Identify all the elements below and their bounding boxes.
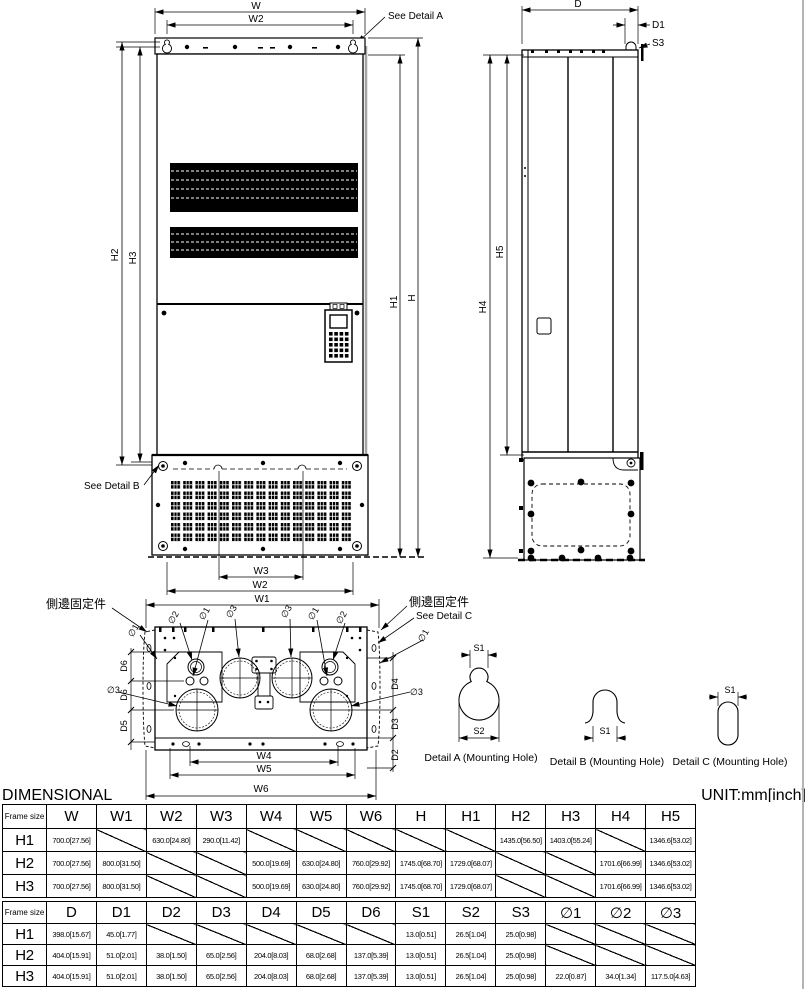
value-cell: 630.0[24.80]: [296, 852, 346, 875]
empty-cell: [196, 924, 246, 945]
detail-b-s1: S1: [599, 726, 610, 736]
dimension-table-widths-heights: Frame sizeWW1W2W3W4W5W6HH1H2H3H4H5H1700.…: [2, 804, 696, 898]
empty-cell: [446, 829, 496, 852]
value-cell: 760.0[29.92]: [346, 875, 396, 898]
dim-header: D6: [346, 902, 396, 924]
value-cell: 25.0[0.98]: [496, 924, 546, 945]
dim-header: D2: [146, 902, 196, 924]
empty-cell: [146, 924, 196, 945]
empty-cell: [546, 875, 596, 898]
frame-size-header: Frame size: [3, 805, 47, 829]
value-cell: 630.0[24.80]: [296, 875, 346, 898]
dim-label-phi1-tl: ∅1: [197, 605, 212, 621]
dim-header: W1: [96, 805, 146, 829]
frame-size-cell: H3: [3, 875, 47, 898]
dimensional-drawing-page: W W2 See Detail A H2 H3 H1 H See Detail …: [0, 0, 809, 989]
large-hole-br: [310, 689, 352, 731]
value-cell: 38.0[1.50]: [146, 945, 196, 966]
value-cell: 13.0[0.51]: [396, 945, 446, 966]
dim-header: S2: [446, 902, 496, 924]
empty-cell: [496, 875, 546, 898]
dim-header: W3: [196, 805, 246, 829]
dim-header: D1: [96, 902, 146, 924]
value-cell: 700.0[27.56]: [47, 875, 97, 898]
empty-cell: [546, 945, 596, 966]
dim-label-h4: H4: [478, 300, 489, 313]
dim-label-w3: W3: [254, 566, 269, 577]
dim-header: S3: [496, 902, 546, 924]
detail-c: [709, 692, 747, 745]
side-fix-right-label: 側邊固定件: [409, 594, 469, 609]
see-detail-c-label: See Detail C: [416, 611, 472, 622]
page-edge-line: [802, 0, 804, 989]
see-detail-a-label: See Detail A: [388, 11, 443, 22]
wall-bracket: [641, 44, 644, 61]
empty-cell: [496, 852, 546, 875]
value-cell: 204.0[8.03]: [246, 966, 296, 987]
dim-label-w2-bottom: W2: [253, 580, 268, 591]
value-cell: 25.0[0.98]: [496, 945, 546, 966]
dim-label-d6-upper: D6: [119, 660, 129, 672]
value-cell: 800.0[31.50]: [96, 875, 146, 898]
dimension-table-depths-holes: Frame sizeDD1D2D3D4D5D6S1S2S3∅1∅2∅3H1398…: [2, 901, 696, 987]
dim-label-w2-top: W2: [249, 14, 264, 25]
dim-header: W: [47, 805, 97, 829]
value-cell: 1701.6[66.99]: [596, 875, 646, 898]
value-cell: 45.0[1.77]: [96, 924, 146, 945]
side-body: [522, 50, 638, 460]
dim-label-w4: W4: [257, 751, 272, 762]
dim-header: H3: [546, 805, 596, 829]
dim-label-h: H: [407, 294, 418, 301]
value-cell: 117.5.0[4.63]: [646, 966, 696, 987]
dim-header: H5: [646, 805, 696, 829]
detail-c-s1: S1: [724, 685, 735, 695]
value-cell: 1346.6[53.02]: [646, 875, 696, 898]
detail-a-s2: S2: [473, 726, 484, 736]
dim-label-h1: H1: [389, 295, 400, 308]
dim-label-h3: H3: [128, 251, 139, 264]
value-cell: 1729.0[68.07]: [446, 875, 496, 898]
value-cell: 398.0[15.67]: [47, 924, 97, 945]
value-cell: 1435.0[56.50]: [496, 829, 546, 852]
dim-header: ∅3: [646, 902, 696, 924]
dim-label-phi3-tr: ∅3: [279, 603, 294, 619]
dim-header: S1: [396, 902, 446, 924]
dim-label-d5: D5: [119, 720, 129, 732]
side-fix-right-leader: [381, 606, 407, 630]
value-cell: 1745.0[68.70]: [396, 852, 446, 875]
value-cell: 65.0[2.56]: [196, 966, 246, 987]
value-cell: 290.0[11.42]: [196, 829, 246, 852]
value-cell: 26.5[1.04]: [446, 966, 496, 987]
dim-header: D3: [196, 902, 246, 924]
dimensional-title: DIMENSIONAL: [2, 787, 112, 802]
front-view: [116, 8, 424, 628]
value-cell: 68.0[2.68]: [296, 945, 346, 966]
keyhole-shape: [459, 668, 499, 720]
vent-band-upper: [170, 163, 358, 212]
frame-size-cell: H2: [3, 852, 47, 875]
vent-band-lower: [170, 227, 358, 258]
dim-label-phi1-outer-right: ∅1: [416, 627, 431, 643]
detail-a-title: Detail A (Mounting Hole): [424, 752, 537, 764]
table-row: H3404.0[15.91]51.0[2.01]38.0[1.50]65.0[2…: [3, 966, 696, 987]
dim-label-h5: H5: [495, 245, 506, 258]
oval-slot-shape: [718, 702, 738, 745]
dim-label-s3: S3: [652, 38, 665, 49]
empty-cell: [596, 945, 646, 966]
empty-cell: [196, 852, 246, 875]
side-fix-left-label: 側邊固定件: [46, 596, 106, 611]
value-cell: 1403.0[55.24]: [546, 829, 596, 852]
frame-size-cell: H1: [3, 924, 47, 945]
dim-label-w: W: [251, 1, 261, 12]
dim-header: W4: [246, 805, 296, 829]
empty-cell: [596, 829, 646, 852]
detail-a-s1: S1: [473, 643, 484, 653]
empty-cell: [546, 924, 596, 945]
value-cell: 800.0[31.50]: [96, 852, 146, 875]
drawing-labels: W W2 See Detail A H2 H3 H1 H See Detail …: [2, 0, 806, 802]
value-cell: 500.0[19.69]: [246, 852, 296, 875]
unit-label: UNIT:mm[inch]: [701, 787, 806, 802]
value-cell: 1745.0[68.70]: [396, 875, 446, 898]
value-cell: 500.0[19.69]: [246, 875, 296, 898]
dim-label-h2: H2: [110, 248, 121, 261]
empty-cell: [646, 924, 696, 945]
value-cell: 404.0[15.91]: [47, 945, 97, 966]
large-hole-bl: [176, 689, 218, 731]
large-hole-tr: [272, 658, 312, 698]
slot-shape: [585, 690, 625, 723]
value-cell: 700.0[27.56]: [47, 829, 97, 852]
value-cell: 38.0[1.50]: [146, 966, 196, 987]
frame-size-cell: H2: [3, 945, 47, 966]
value-cell: 22.0[0.87]: [546, 966, 596, 987]
empty-cell: [146, 875, 196, 898]
empty-cell: [146, 852, 196, 875]
dim-label-w6: W6: [254, 784, 269, 795]
dim-label-d1: D1: [652, 20, 665, 31]
see-detail-b-label: See Detail B: [84, 481, 140, 492]
value-cell: 404.0[15.91]: [47, 966, 97, 987]
dim-label-d: D: [574, 0, 581, 10]
dim-header: W2: [146, 805, 196, 829]
value-cell: 13.0[0.51]: [396, 924, 446, 945]
frame-size-cell: H3: [3, 966, 47, 987]
value-cell: 25.0[0.98]: [496, 966, 546, 987]
table-row: H3700.0[27.56]800.0[31.50]500.0[19.69]63…: [3, 875, 696, 898]
value-cell: 51.0[2.01]: [96, 945, 146, 966]
value-cell: 51.0[2.01]: [96, 966, 146, 987]
dim-header: H1: [446, 805, 496, 829]
value-cell: 137.0[5.39]: [346, 945, 396, 966]
detail-b-title: Detail B (Mounting Hole): [550, 756, 664, 768]
dim-label-phi3-right: ∅3: [410, 687, 423, 697]
dim-label-phi3-tl: ∅3: [224, 603, 239, 619]
frame-size-cell: H1: [3, 829, 47, 852]
dim-label-phi1-tr: ∅1: [306, 605, 321, 621]
value-cell: 1729.0[68.07]: [446, 852, 496, 875]
table-row: H2404.0[15.91]51.0[2.01]38.0[1.50]65.0[2…: [3, 945, 696, 966]
dim-header: W5: [296, 805, 346, 829]
empty-cell: [346, 829, 396, 852]
empty-cell: [346, 924, 396, 945]
value-cell: 204.0[8.03]: [246, 945, 296, 966]
value-cell: 630.0[24.80]: [146, 829, 196, 852]
value-cell: 26.5[1.04]: [446, 945, 496, 966]
dim-header: D: [47, 902, 97, 924]
dim-header: D5: [296, 902, 346, 924]
side-view: [483, 6, 650, 561]
value-cell: 68.0[2.68]: [296, 966, 346, 987]
dim-header: ∅2: [596, 902, 646, 924]
dim-header: H4: [596, 805, 646, 829]
dim-header: ∅1: [546, 902, 596, 924]
value-cell: 1701.6[66.99]: [596, 852, 646, 875]
dim-label-phi1-outer-left: ∅1: [126, 622, 141, 638]
value-cell: 700.0[27.56]: [47, 852, 97, 875]
dim-label-w5: W5: [257, 764, 272, 775]
table-row: H1700.0[27.56]630.0[24.80]290.0[11.42]14…: [3, 829, 696, 852]
dim-label-phi2-tl: ∅2: [166, 609, 181, 625]
header-row: Frame sizeDD1D2D3D4D5D6S1S2S3∅1∅2∅3: [3, 902, 696, 924]
empty-cell: [546, 852, 596, 875]
value-cell: 760.0[29.92]: [346, 852, 396, 875]
value-cell: 34.0[1.34]: [596, 966, 646, 987]
keypad-screen: [330, 315, 347, 328]
side-bracket-right-shape: [367, 630, 380, 748]
value-cell: 13.0[0.51]: [396, 966, 446, 987]
empty-cell: [596, 924, 646, 945]
empty-cell: [196, 875, 246, 898]
frame-size-header: Frame size: [3, 902, 47, 924]
dim-header: H2: [496, 805, 546, 829]
empty-cell: [96, 829, 146, 852]
dim-header: D4: [246, 902, 296, 924]
empty-cell: [646, 945, 696, 966]
value-cell: 1346.6[53.02]: [646, 829, 696, 852]
vent-grid: [171, 481, 352, 543]
dim-label-w1: W1: [255, 594, 270, 605]
table-row: H2700.0[27.56]800.0[31.50]500.0[19.69]63…: [3, 852, 696, 875]
value-cell: 26.5[1.04]: [446, 924, 496, 945]
detail-c-title: Detail C (Mounting Hole): [673, 756, 788, 768]
empty-cell: [396, 829, 446, 852]
dim-label-d2: D2: [390, 749, 400, 761]
keypad: [325, 303, 352, 362]
empty-cell: [246, 829, 296, 852]
bottom-plate: [155, 627, 367, 750]
value-cell: 1346.6[53.02]: [646, 852, 696, 875]
large-hole-tl: [220, 658, 260, 698]
empty-cell: [296, 924, 346, 945]
side-lower-box: [518, 452, 645, 561]
dim-header: W6: [346, 805, 396, 829]
dim-label-d3: D3: [390, 718, 400, 730]
s3-leader: [639, 44, 650, 48]
technical-drawing: W W2 See Detail A H2 H3 H1 H See Detail …: [0, 0, 809, 802]
dim-label-d4: D4: [390, 678, 400, 690]
dim-label-d6-lower: D6: [119, 689, 129, 701]
empty-cell: [296, 829, 346, 852]
dim-label-phi3-left: ∅3: [107, 685, 120, 695]
detail-c-leader: [378, 618, 414, 643]
value-cell: 65.0[2.56]: [196, 945, 246, 966]
empty-cell: [246, 924, 296, 945]
lower-section: [148, 455, 424, 580]
header-row: Frame sizeWW1W2W3W4W5W6HH1H2H3H4H5: [3, 805, 696, 829]
dim-label-phi2-tr: ∅2: [334, 609, 349, 625]
value-cell: 137.0[5.39]: [346, 966, 396, 987]
dim-header: H: [396, 805, 446, 829]
table-row: H1398.0[15.67]45.0[1.77]13.0[0.51]26.5[1…: [3, 924, 696, 945]
